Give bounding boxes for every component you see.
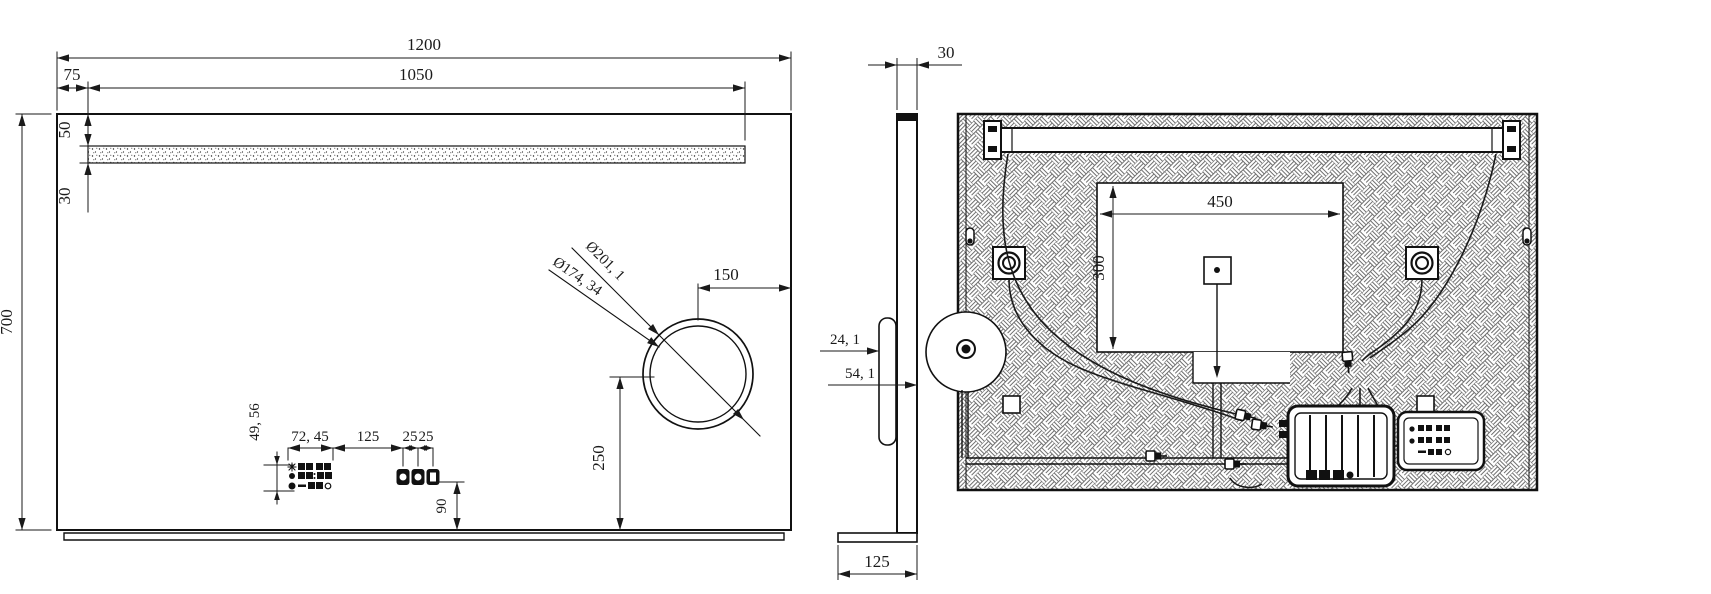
keyhole-hanger-left [966, 228, 974, 245]
wire-corridor [1193, 352, 1290, 383]
dim-text-49-56: 49, 56 [247, 403, 263, 441]
dim-text-125: 125 [357, 429, 380, 445]
speaker [926, 312, 1006, 392]
cable-gland [1279, 420, 1289, 427]
dim-text-1050: 1050 [399, 65, 433, 84]
dim-text-250: 250 [589, 445, 608, 471]
front-view: 1200 75 1050 50 30 700 [0, 35, 791, 540]
dim-text-150: 150 [713, 265, 739, 284]
mirror-cad-drawing: 1200 75 1050 50 30 700 [0, 0, 1711, 594]
side-top-cap [897, 114, 917, 121]
dim-text-90: 90 [434, 499, 450, 514]
cable-gland [1279, 431, 1289, 438]
wire-clip-left [1003, 396, 1020, 413]
technical-drawing-sheet: 1200 75 1050 50 30 700 [0, 0, 1711, 594]
touch-display-panel [288, 463, 332, 490]
touch-buttons [397, 469, 440, 485]
dim-text-30: 30 [55, 188, 74, 205]
dim-text-72-45: 72, 45 [291, 429, 329, 445]
dim-text-450: 450 [1207, 192, 1233, 211]
dim-text-54-1: 54, 1 [845, 366, 875, 382]
dim-text-side-125: 125 [864, 552, 890, 571]
dim-magnifier-depth: 24, 1 [820, 332, 879, 355]
keyhole-hanger-right [1523, 228, 1531, 245]
dim-text-24-1: 24, 1 [830, 332, 860, 348]
mirror-bottom-shelf [64, 533, 784, 540]
dim-base-depth: 125 [838, 545, 917, 580]
led-strip [88, 146, 745, 163]
dim-overall-height: 700 [0, 114, 51, 530]
dim-text-700: 700 [0, 309, 16, 335]
dim-thickness: 30 [868, 43, 962, 110]
defrost-icon [288, 463, 296, 471]
niche-cable-box [1204, 257, 1231, 284]
back-view: 450 300 [926, 114, 1537, 490]
dim-text-side-30: 30 [938, 43, 955, 62]
side-base-plate [838, 533, 917, 542]
dim-text-1200: 1200 [407, 35, 441, 54]
display-module [1398, 412, 1484, 470]
mirror-side-outline [897, 114, 917, 533]
dim-text-300: 300 [1089, 255, 1108, 281]
side-view: 30 24, 1 54, 1 125 [820, 43, 962, 580]
magnifier-housing-side [879, 318, 896, 445]
touch-sensor-right [1406, 247, 1438, 279]
dim-text-25b: 25 [419, 429, 434, 445]
dim-text-25a: 25 [403, 429, 418, 445]
wire-clip-right [1417, 396, 1434, 413]
junction-box [1279, 406, 1394, 486]
dim-text-75: 75 [64, 65, 81, 84]
dim-text-50: 50 [55, 122, 74, 139]
